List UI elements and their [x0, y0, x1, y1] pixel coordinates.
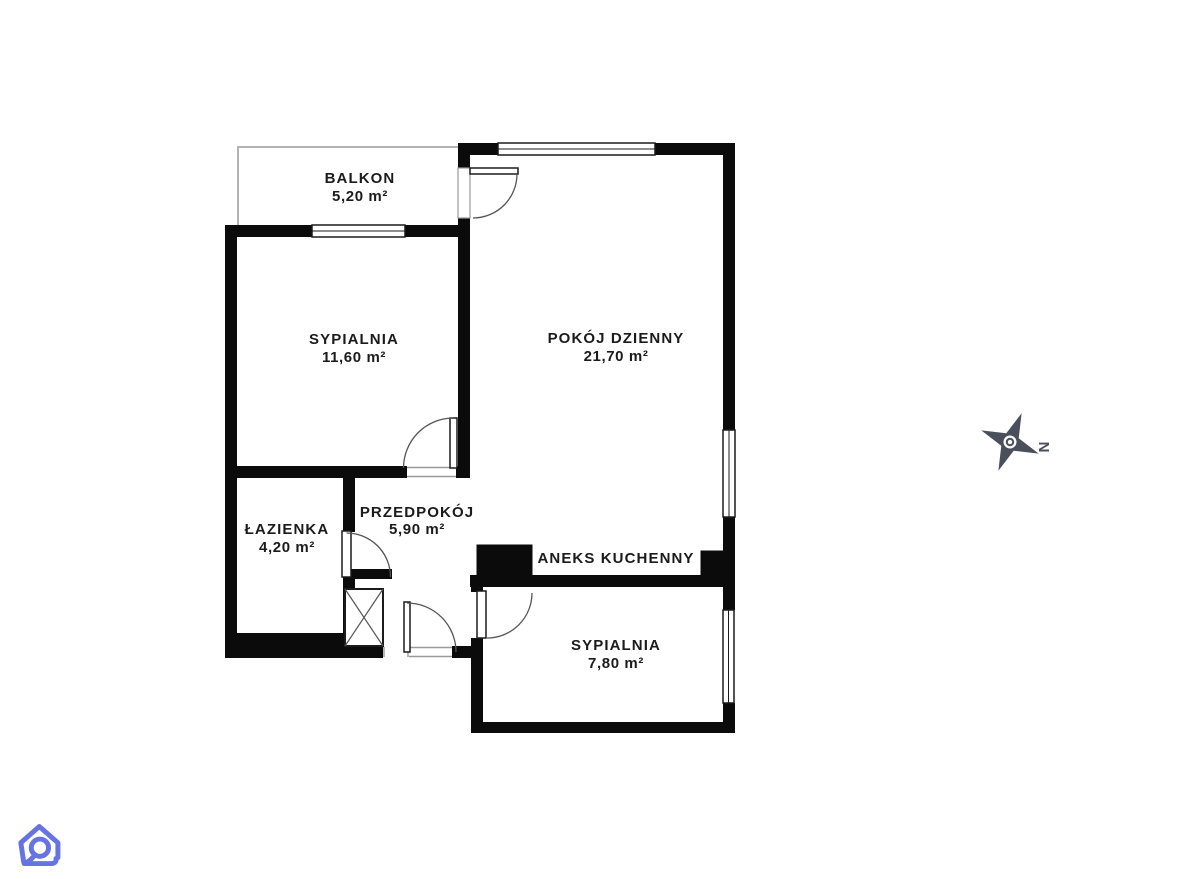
room-area-przedpokoj: 5,90 m² [389, 521, 445, 538]
room-label-pokoj-dzienny: POKÓJ DZIENNY [548, 329, 685, 347]
room-area-balkon: 5,20 m² [332, 188, 388, 205]
room-label-przedpokoj: PRZEDPOKÓJ [360, 503, 474, 521]
kitchen-counter [477, 545, 532, 577]
wall [225, 466, 407, 478]
room-area-sypialnia2: 7,80 m² [588, 655, 644, 672]
wall [723, 143, 735, 430]
balcony-door-leaf [470, 168, 518, 174]
wall [458, 143, 470, 170]
wall [225, 225, 312, 237]
compass-center-ring [1006, 438, 1014, 446]
room-area-pokoj-dzienny: 21,70 m² [584, 348, 649, 365]
wall [723, 703, 735, 733]
wall [343, 646, 383, 658]
entrance-door-leaf [404, 602, 410, 652]
bedroom1-door-leaf [450, 418, 457, 468]
room-label-aneks-kuchenny: ANEKS KUCHENNY [537, 550, 694, 567]
room-area-sypialnia1: 11,60 m² [322, 349, 386, 366]
bedroom2-door-swing [487, 593, 532, 638]
wall [456, 466, 470, 478]
compass-rose: N [970, 402, 1052, 483]
wall [225, 633, 343, 658]
bedroom2-door-leaf [477, 591, 486, 638]
wall [723, 587, 735, 610]
bathroom-door-leaf [342, 531, 351, 577]
wall [343, 478, 355, 532]
brand-logo [21, 827, 58, 864]
wall [458, 218, 470, 477]
room-label-balkon: BALKON [325, 170, 396, 187]
room-label-sypialnia2: SYPIALNIA [571, 637, 661, 654]
wall [471, 722, 735, 733]
floor-plan-drawing: BALKON 5,20 m² SYPIALNIA 11,60 m² POKÓJ … [0, 0, 1200, 879]
balcony-door-swing [473, 174, 517, 218]
wall [471, 638, 483, 733]
bedroom1-door-swing [404, 418, 454, 468]
room-label-sypialnia1: SYPIALNIA [309, 331, 399, 348]
kitchen-counter [701, 551, 729, 578]
entrance-door-swing [407, 603, 456, 652]
wall [225, 225, 237, 658]
floor-plan-page: BALKON 5,20 m² SYPIALNIA 11,60 m² POKÓJ … [0, 0, 1200, 879]
shaft-symbol [345, 589, 383, 646]
room-label-lazienka: ŁAZIENKA [245, 521, 330, 538]
balcony-door-frame [458, 168, 470, 218]
north-label: N [1035, 442, 1052, 453]
room-area-lazienka: 4,20 m² [259, 539, 315, 556]
